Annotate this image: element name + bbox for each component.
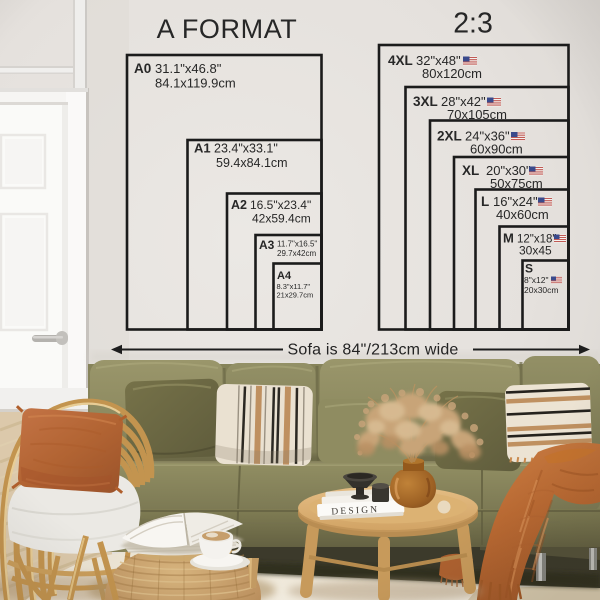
svg-text:A FORMAT: A FORMAT (157, 14, 298, 44)
svg-text:A1: A1 (194, 141, 211, 156)
svg-text:42x59.4cm: 42x59.4cm (252, 212, 311, 226)
svg-text:2:3: 2:3 (453, 8, 493, 40)
svg-text:40x60cm: 40x60cm (496, 207, 549, 222)
svg-text:30x45: 30x45 (519, 244, 552, 258)
svg-text:80x120cm: 80x120cm (422, 66, 482, 81)
svg-text:8"x12": 8"x12" (524, 275, 548, 285)
svg-text:A2: A2 (231, 198, 247, 212)
svg-text:4XL: 4XL (388, 53, 413, 68)
svg-text:16.5"x23.4": 16.5"x23.4" (250, 198, 311, 212)
svg-text:A4: A4 (277, 270, 292, 282)
svg-text:XL: XL (462, 163, 479, 178)
svg-text:50x75cm: 50x75cm (490, 176, 543, 191)
svg-text:A0: A0 (134, 61, 151, 76)
svg-text:60x90cm: 60x90cm (470, 142, 523, 157)
svg-text:70x105cm: 70x105cm (447, 107, 507, 122)
svg-text:2XL: 2XL (437, 129, 462, 144)
svg-text:Sofa is 84"/213cm wide: Sofa is 84"/213cm wide (287, 342, 458, 359)
svg-text:29.7x42cm: 29.7x42cm (277, 249, 316, 258)
svg-text:20x30cm: 20x30cm (524, 285, 559, 295)
svg-text:3XL: 3XL (413, 94, 438, 109)
svg-text:84.1x119.9cm: 84.1x119.9cm (155, 76, 236, 91)
svg-text:21x29.7cm: 21x29.7cm (277, 291, 314, 300)
svg-text:23.4"x33.1": 23.4"x33.1" (214, 142, 278, 156)
svg-text:31.1"x46.8": 31.1"x46.8" (155, 61, 222, 76)
svg-text:S: S (525, 262, 533, 276)
svg-text:11.7"x16.5": 11.7"x16.5" (277, 240, 317, 249)
svg-text:A3: A3 (259, 238, 275, 252)
svg-text:M: M (503, 231, 514, 246)
svg-text:59.4x84.1cm: 59.4x84.1cm (216, 156, 288, 170)
svg-text:L: L (481, 194, 489, 209)
